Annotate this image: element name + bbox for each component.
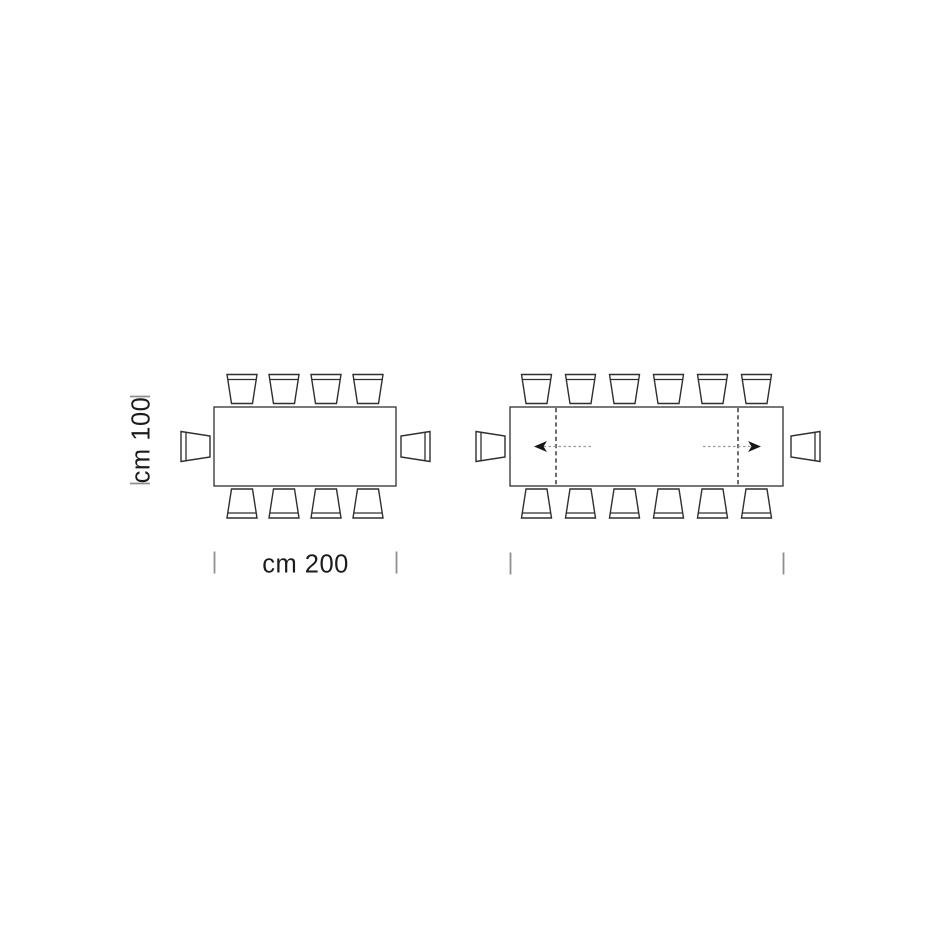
chair-outline xyxy=(522,489,552,518)
closed-table-group xyxy=(130,375,430,574)
chair xyxy=(698,375,728,404)
chair xyxy=(181,432,210,462)
chair xyxy=(227,489,257,518)
chair xyxy=(698,489,728,518)
chair xyxy=(522,375,552,404)
chair xyxy=(476,432,505,462)
chair xyxy=(269,375,299,404)
chair-outline xyxy=(791,432,820,462)
chair xyxy=(610,375,640,404)
height-dimension-label: cm 100 xyxy=(128,397,156,484)
chair xyxy=(566,489,596,518)
chair xyxy=(522,489,552,518)
diagram-canvas: cm 200 cm 100 xyxy=(0,0,950,950)
chair xyxy=(566,375,596,404)
chair xyxy=(791,432,820,462)
chair-outline xyxy=(654,489,684,518)
chair xyxy=(353,489,383,518)
chair xyxy=(610,489,640,518)
chair-outline xyxy=(353,489,383,518)
chair xyxy=(353,375,383,404)
chair-outline xyxy=(269,489,299,518)
furniture-dimension-diagram: cm 200 cm 100 xyxy=(0,0,950,950)
table-top xyxy=(214,407,396,486)
width-dimension-label: cm 200 xyxy=(262,551,349,579)
chair-outline xyxy=(742,489,772,518)
chair xyxy=(742,375,772,404)
chair xyxy=(311,375,341,404)
chair-outline xyxy=(311,489,341,518)
chair-outline xyxy=(227,489,257,518)
height-dimension-label-group: cm 100 xyxy=(128,397,156,484)
chair xyxy=(742,489,772,518)
chair-outline xyxy=(566,489,596,518)
chair-outline xyxy=(698,489,728,518)
chair xyxy=(654,489,684,518)
chair xyxy=(401,432,430,462)
chair xyxy=(311,489,341,518)
chair xyxy=(654,375,684,404)
extended-table-group xyxy=(476,375,820,575)
chair xyxy=(227,375,257,404)
tables-root xyxy=(130,375,820,575)
chair xyxy=(269,489,299,518)
chair-outline xyxy=(610,489,640,518)
